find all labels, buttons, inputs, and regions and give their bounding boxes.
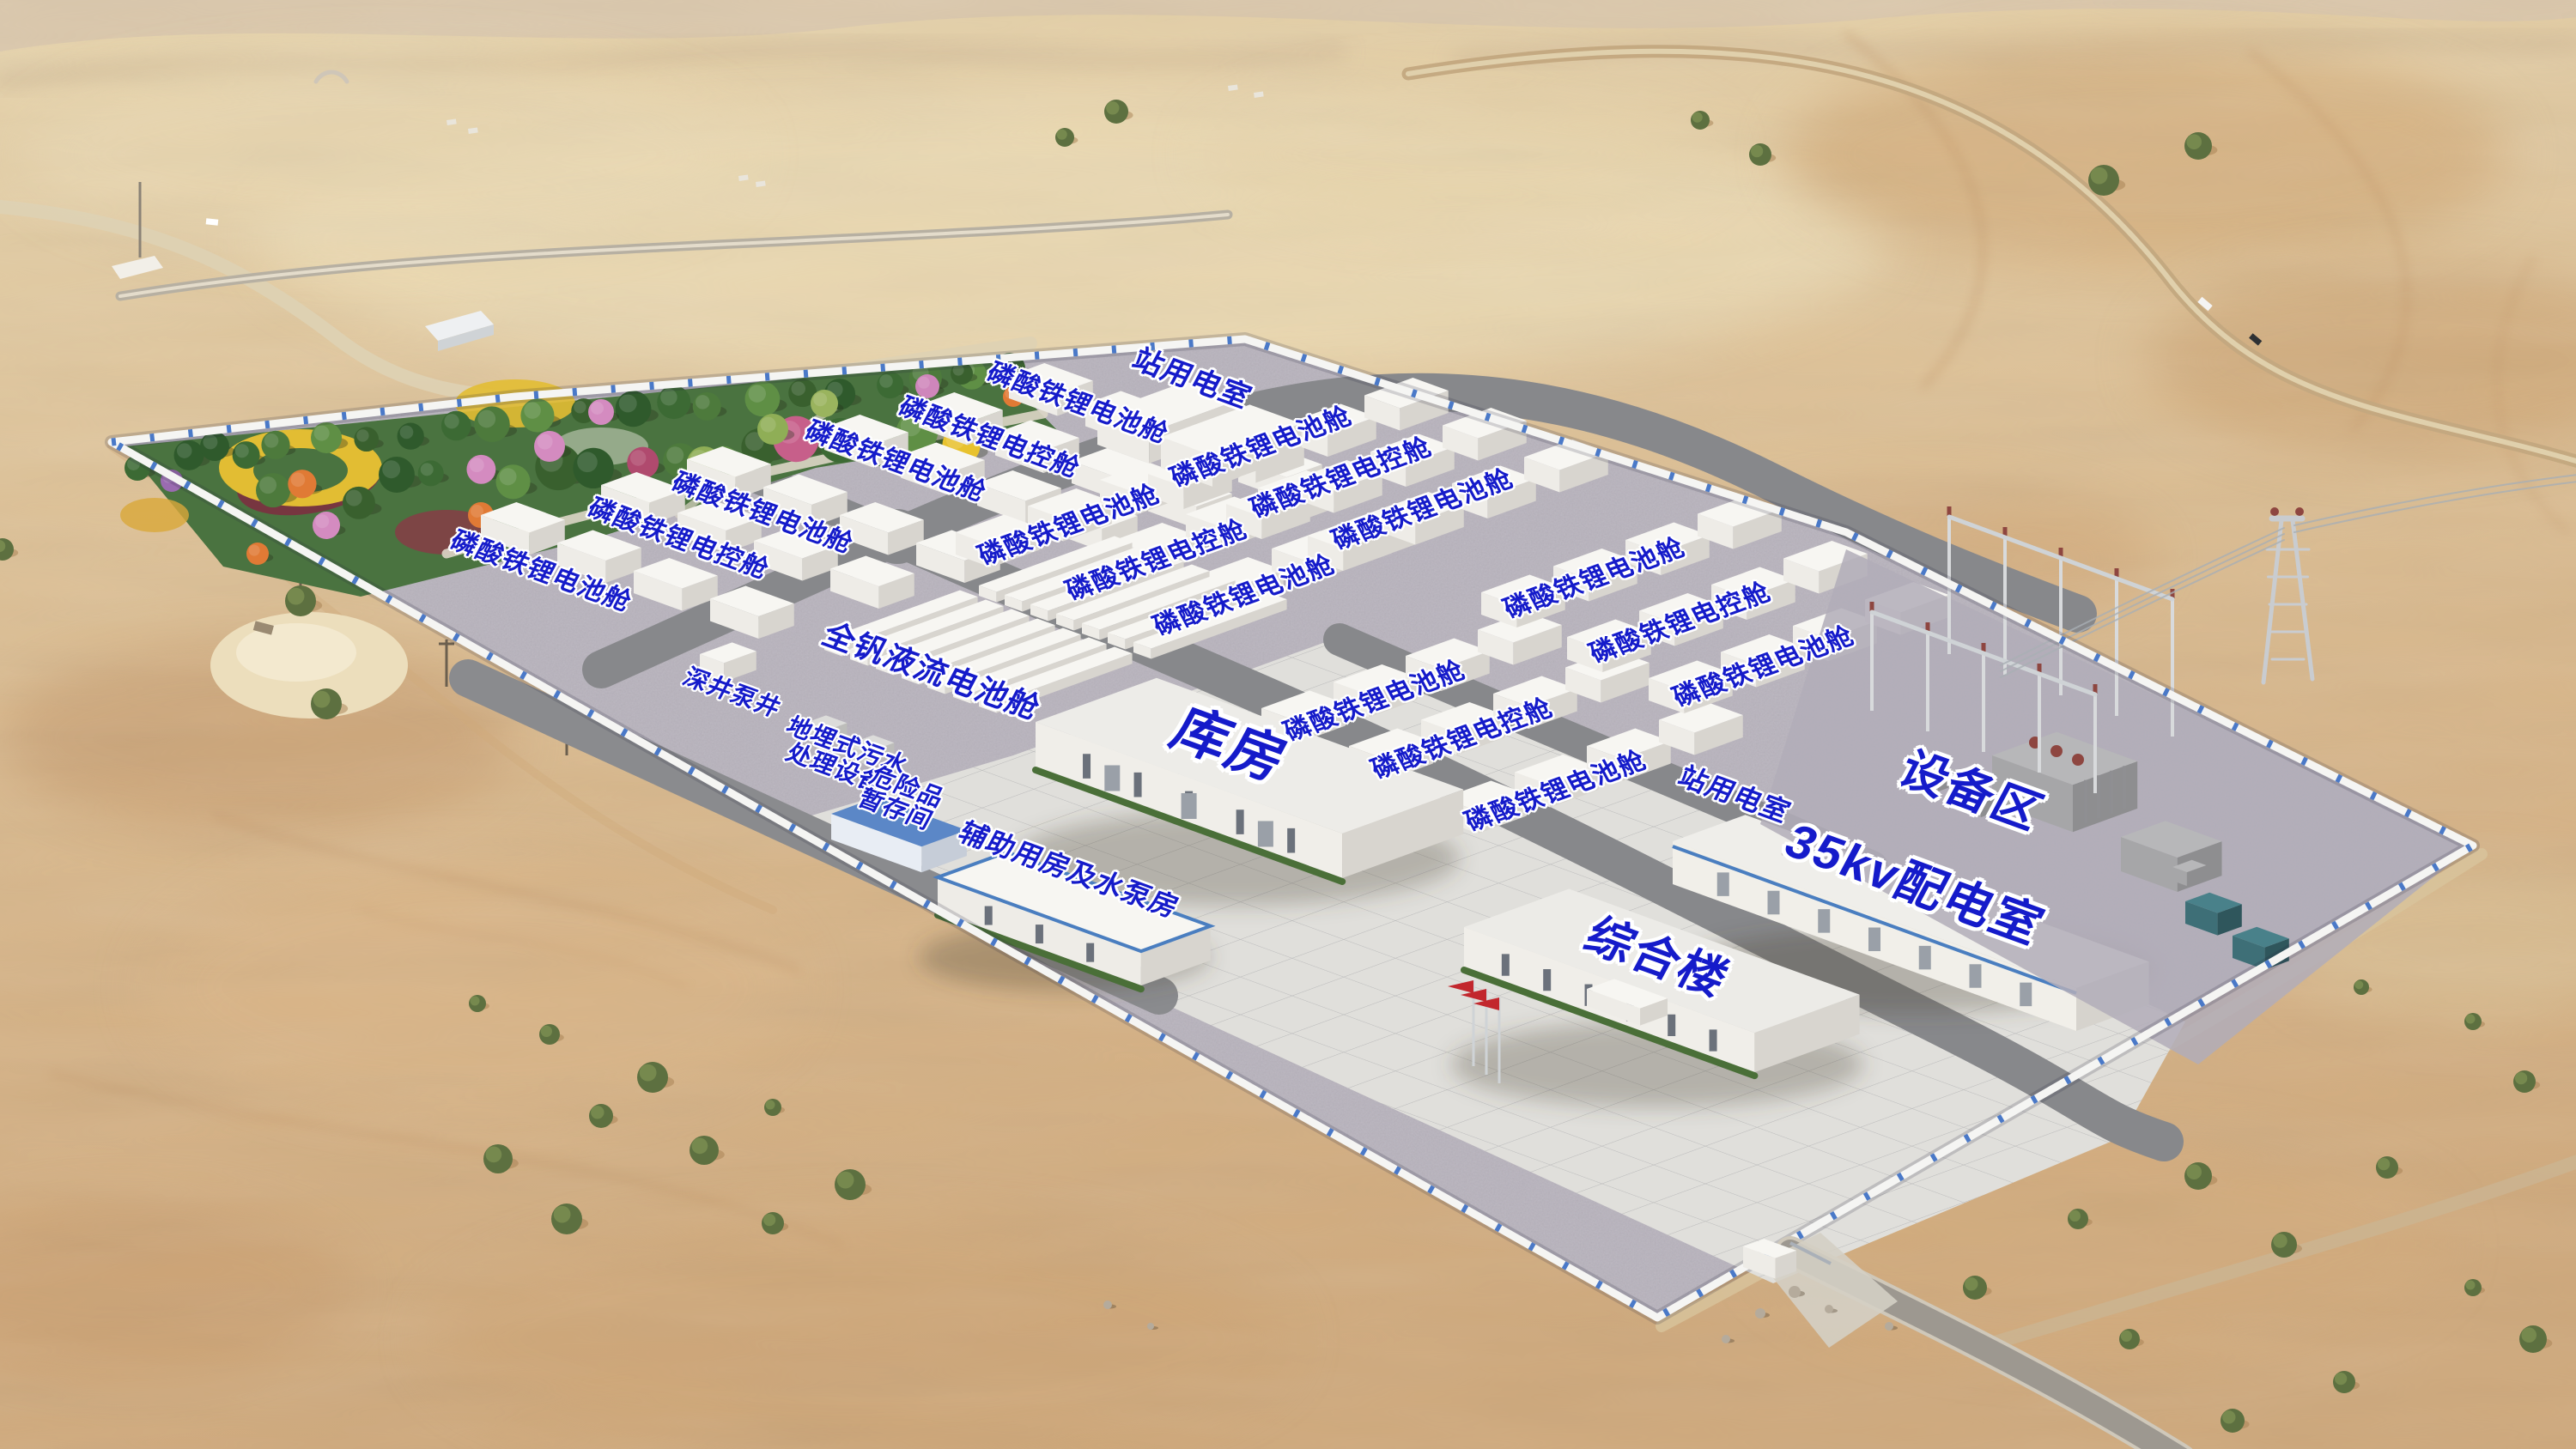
aerial-site-render: 磷酸铁锂电池舱磷酸铁锂电控舱磷酸铁锂电池舱磷酸铁锂电池舱磷酸铁锂电控舱磷酸铁锂电…	[0, 0, 2576, 1449]
scene-svg	[0, 0, 2576, 1449]
